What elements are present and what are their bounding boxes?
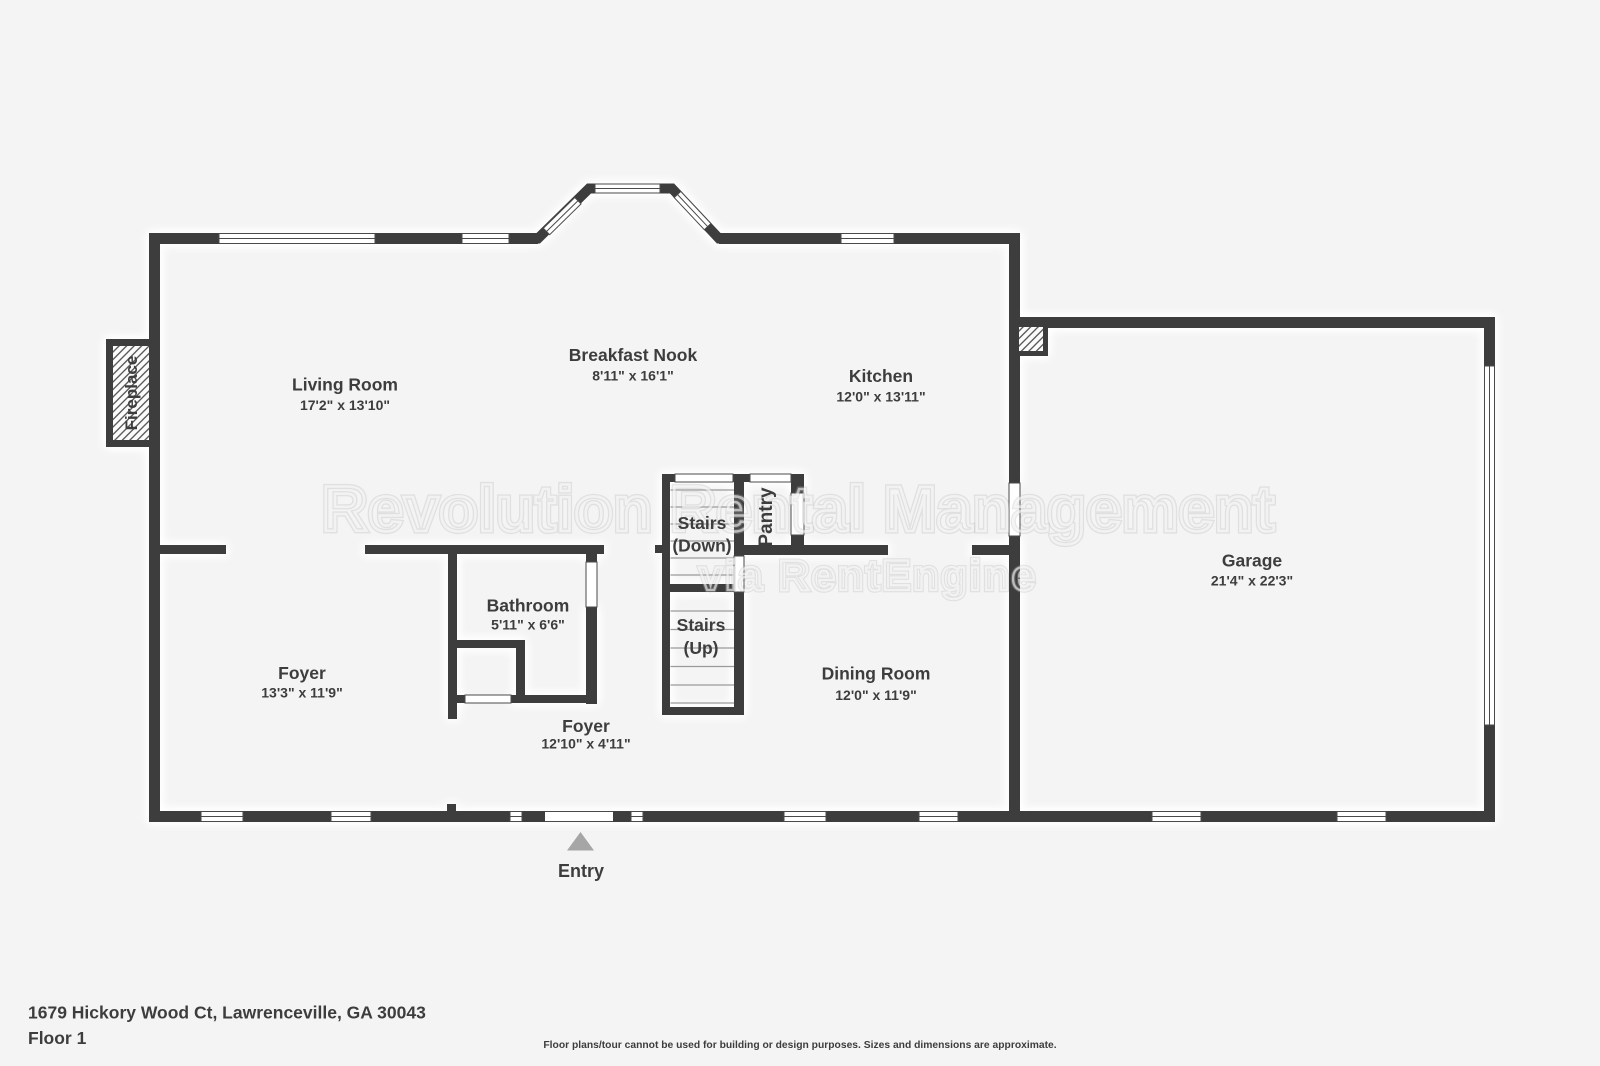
svg-text:(Down): (Down) xyxy=(672,536,731,556)
svg-text:(Up): (Up) xyxy=(684,638,719,658)
svg-text:Entry: Entry xyxy=(558,861,604,881)
svg-text:12'0" x 11'9": 12'0" x 11'9" xyxy=(835,687,916,703)
svg-text:12'10" x 4'11": 12'10" x 4'11" xyxy=(541,736,630,752)
svg-text:Pantry: Pantry xyxy=(756,487,777,547)
svg-text:Revolution Rental Management: Revolution Rental Management xyxy=(322,473,1275,545)
svg-text:Stairs: Stairs xyxy=(678,513,727,533)
svg-text:Dining Room: Dining Room xyxy=(822,664,931,684)
svg-text:12'0" x 13'11": 12'0" x 13'11" xyxy=(836,389,925,405)
svg-text:via RentEngine: via RentEngine xyxy=(699,552,1038,600)
svg-text:21'4" x 22'3": 21'4" x 22'3" xyxy=(1211,573,1293,589)
svg-text:5'11" x 6'6": 5'11" x 6'6" xyxy=(491,617,565,633)
svg-text:17'2" x 13'10": 17'2" x 13'10" xyxy=(300,397,390,413)
svg-text:Kitchen: Kitchen xyxy=(849,366,913,386)
svg-text:Living Room: Living Room xyxy=(292,375,398,395)
svg-text:Fireplace: Fireplace xyxy=(122,356,141,431)
svg-text:Stairs: Stairs xyxy=(677,615,726,635)
svg-text:Garage: Garage xyxy=(1222,551,1283,571)
svg-text:Foyer: Foyer xyxy=(278,663,326,683)
svg-text:Floor plans/tour cannot be use: Floor plans/tour cannot be used for buil… xyxy=(543,1040,1056,1051)
svg-text:1679 Hickory Wood Ct, Lawrence: 1679 Hickory Wood Ct, Lawrenceville, GA … xyxy=(28,1003,426,1023)
svg-text:Foyer: Foyer xyxy=(562,716,610,736)
svg-text:Bathroom: Bathroom xyxy=(487,596,570,616)
svg-text:8'11" x 16'1": 8'11" x 16'1" xyxy=(592,368,673,384)
svg-text:Breakfast Nook: Breakfast Nook xyxy=(569,345,698,365)
svg-text:Floor 1: Floor 1 xyxy=(28,1028,87,1048)
svg-text:13'3" x 11'9": 13'3" x 11'9" xyxy=(261,685,342,701)
